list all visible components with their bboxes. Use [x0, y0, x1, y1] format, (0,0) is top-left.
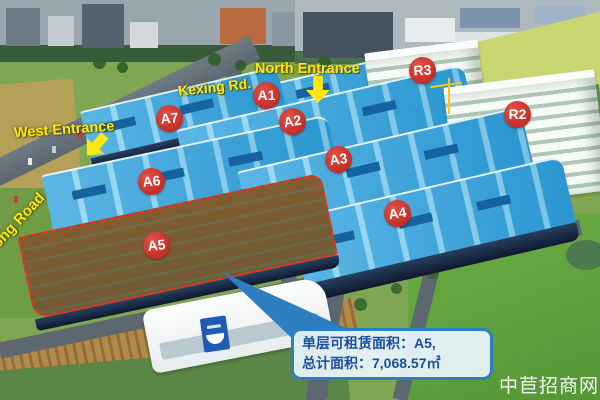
callout-line2: 总计面积：7,068.57㎡ [302, 354, 482, 374]
callout-line1: 单层可租赁面积：A5, [302, 334, 482, 354]
north-entrance-label: North Entrance [255, 61, 360, 77]
aerial-photo: A1 A2 A3 A4 A5 A6 A7 R2 R3 North Entranc… [0, 0, 600, 400]
building-label-r2: R2 [504, 101, 531, 128]
building-label-a1: A1 [253, 82, 280, 109]
pond [566, 240, 600, 270]
city-skyline [0, 0, 312, 62]
watermark: 中苣招商网 [499, 371, 599, 398]
trees [0, 0, 9, 9]
a5-area-callout: 单层可租赁面积：A5, 总计面积：7,068.57㎡ [291, 328, 493, 380]
company-logo [200, 315, 230, 352]
